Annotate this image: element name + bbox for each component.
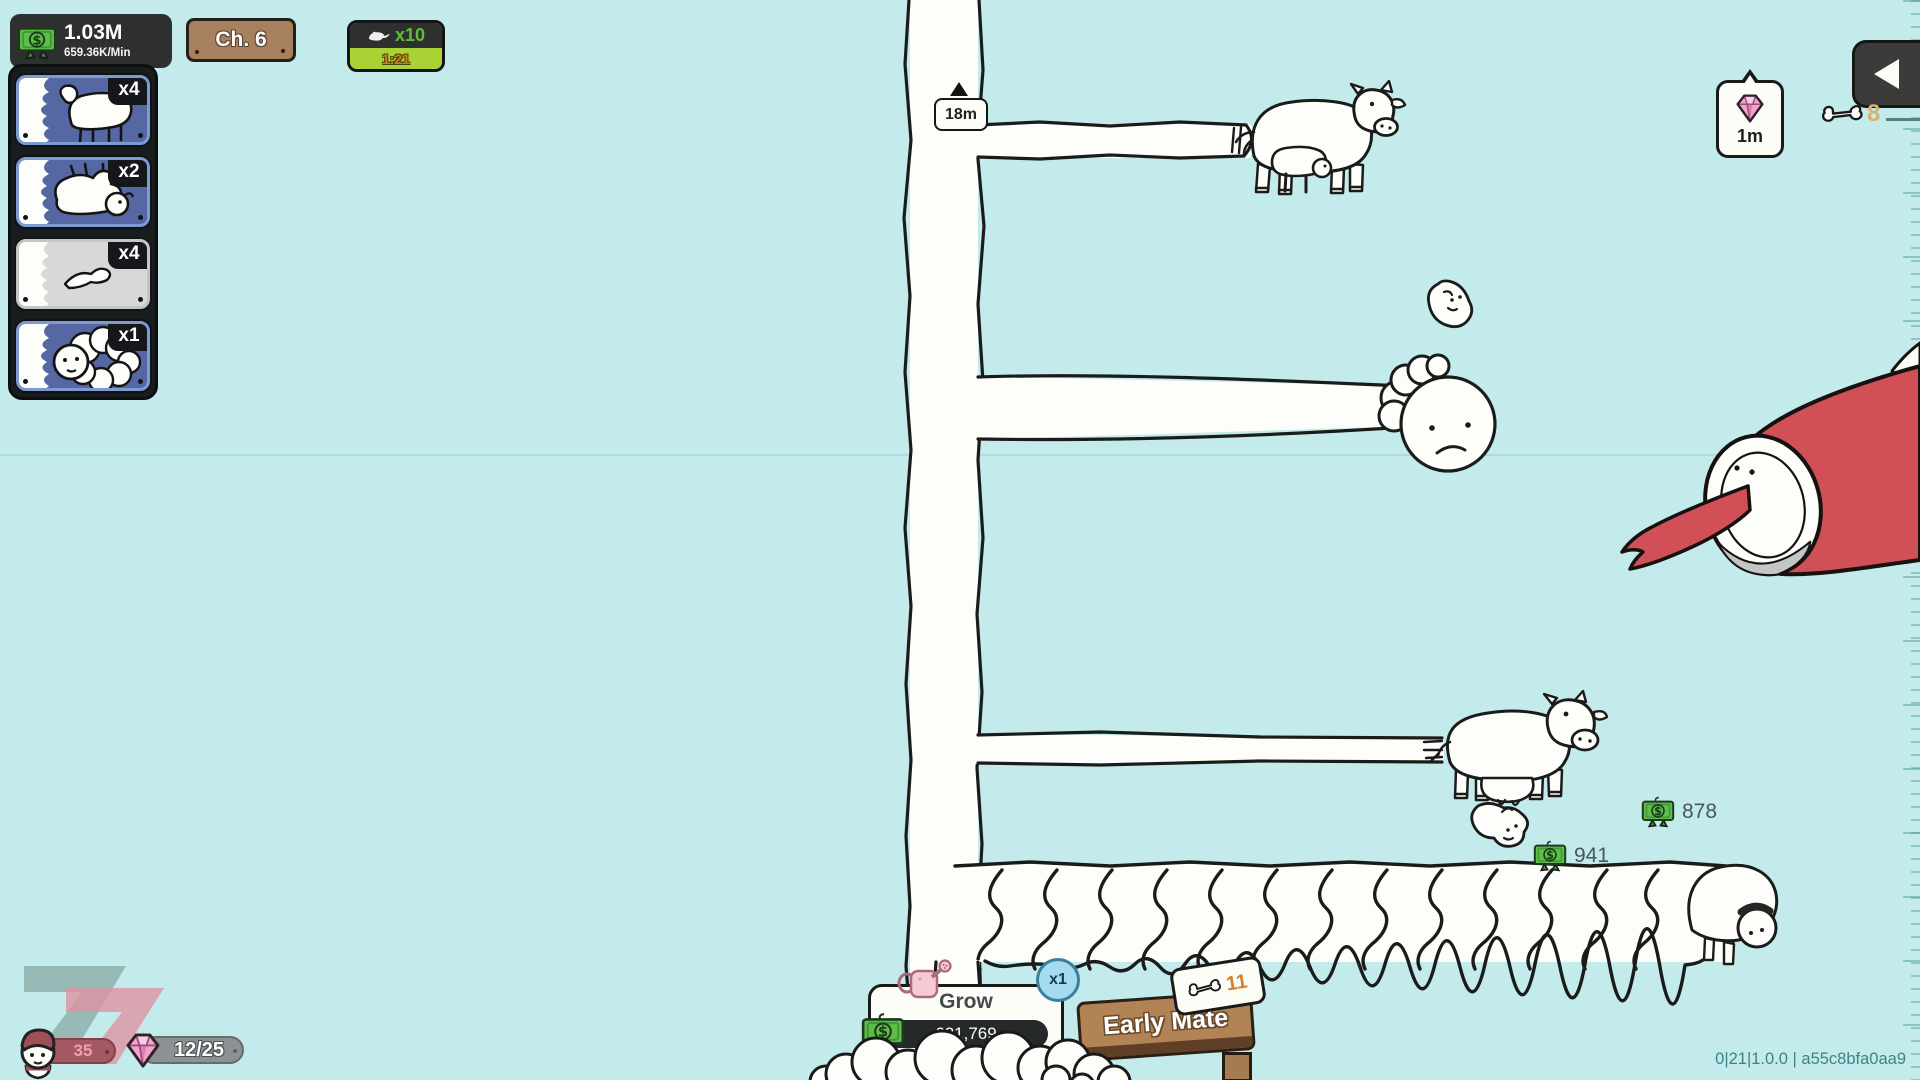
money-icon bbox=[1640, 796, 1676, 828]
boost-multiplier: x10 bbox=[395, 25, 425, 46]
back-button[interactable] bbox=[1852, 40, 1920, 108]
world-art: $ bbox=[0, 0, 1920, 1080]
card-multiplier: x4 bbox=[108, 75, 150, 105]
height-marker-arrow bbox=[950, 82, 968, 96]
money-drop-value: 941 bbox=[1574, 844, 1609, 868]
level-value: 35 bbox=[74, 1041, 93, 1061]
falling-lamb-lower[interactable] bbox=[1472, 803, 1528, 846]
early-mate-sign-group: Early Mate 11 bbox=[1076, 962, 1286, 1080]
bone-count: 8 bbox=[1867, 100, 1880, 128]
red-creature[interactable] bbox=[1622, 343, 1920, 588]
money-icon bbox=[860, 1012, 906, 1054]
early-mate-cost: 11 bbox=[1225, 970, 1249, 996]
card-multiplier: x2 bbox=[108, 157, 150, 187]
money-drop[interactable]: 878 bbox=[1640, 796, 1717, 828]
tree-trunk bbox=[904, 0, 984, 1004]
version-text: 0|21|1.0.0 | a55c8bfa0aa9 bbox=[1715, 1050, 1906, 1069]
grow-progress-value: 621,769 bbox=[935, 1024, 996, 1044]
boost-badge[interactable]: x10 1:21 bbox=[347, 20, 445, 72]
bone-counter: 8 bbox=[1822, 100, 1880, 128]
elevation-ruler-major-ticks bbox=[1903, 0, 1920, 1080]
bone-icon bbox=[1822, 101, 1864, 127]
grow-multiplier-value: x1 bbox=[1049, 971, 1067, 989]
sheep-branch-end[interactable] bbox=[1689, 865, 1777, 964]
cow-udder[interactable] bbox=[1431, 691, 1607, 805]
watering-can-icon bbox=[896, 958, 952, 1004]
gem-progress-pill: 12/25 bbox=[140, 1036, 244, 1064]
money-value: 1.03M bbox=[64, 22, 130, 44]
height-marker: 18m bbox=[934, 98, 988, 131]
branch-top bbox=[975, 122, 1256, 159]
money-rate: 659.36K/Min bbox=[64, 47, 130, 59]
card-multiplier: x1 bbox=[108, 321, 150, 351]
foreground-clouds bbox=[0, 0, 1920, 1080]
money-icon bbox=[16, 21, 58, 61]
money-counter: 1.03M 659.36K/Min bbox=[10, 14, 172, 68]
chapter-sign: Ch. 6 bbox=[186, 18, 296, 62]
gem-icon bbox=[120, 1030, 166, 1070]
animal-card-sheep-on-back[interactable]: x2 bbox=[16, 157, 150, 227]
game-screen: $ bbox=[0, 0, 1920, 1080]
animal-card-wool-head[interactable]: x1 bbox=[16, 321, 150, 391]
height-marker-label: 18m bbox=[945, 106, 977, 124]
gem-drop-label: 1m bbox=[1737, 126, 1763, 147]
gem-drop-badge[interactable]: 1m bbox=[1716, 80, 1784, 158]
chapter-label: Ch. 6 bbox=[215, 28, 266, 52]
money-drop[interactable]: 941 bbox=[1532, 840, 1609, 872]
animal-card-sidebar: x4 x2 x4 bbox=[8, 64, 158, 400]
grow-multiplier-badge: x1 bbox=[1036, 958, 1080, 1002]
rat-icon bbox=[367, 29, 391, 43]
boost-timer: 1:21 bbox=[382, 51, 410, 67]
gem-icon bbox=[1731, 91, 1769, 125]
cow-top[interactable] bbox=[1236, 81, 1405, 194]
animal-card-sheep-standing[interactable]: x4 bbox=[16, 75, 150, 145]
bone-icon bbox=[1187, 974, 1224, 1001]
grow-progress-bar: 621,769 bbox=[884, 1020, 1048, 1048]
sign-post bbox=[1222, 1052, 1252, 1080]
money-drop-value: 878 bbox=[1682, 800, 1717, 824]
player-avatar bbox=[12, 1022, 64, 1080]
horizon-line bbox=[0, 454, 1920, 456]
back-arrow-icon bbox=[1874, 59, 1899, 89]
money-icon bbox=[1532, 840, 1568, 872]
grow-button-group: Grow 621,769 x1 bbox=[868, 970, 1068, 1080]
falling-lamb-upper[interactable] bbox=[1428, 281, 1471, 327]
gem-progress-value: 12/25 bbox=[174, 1039, 224, 1062]
animal-card-mystery[interactable]: x4 bbox=[16, 239, 150, 309]
branch-lower bbox=[975, 732, 1444, 765]
bone-threshold-line bbox=[1886, 118, 1920, 121]
branch-middle bbox=[975, 376, 1410, 440]
card-multiplier: x4 bbox=[108, 239, 150, 269]
